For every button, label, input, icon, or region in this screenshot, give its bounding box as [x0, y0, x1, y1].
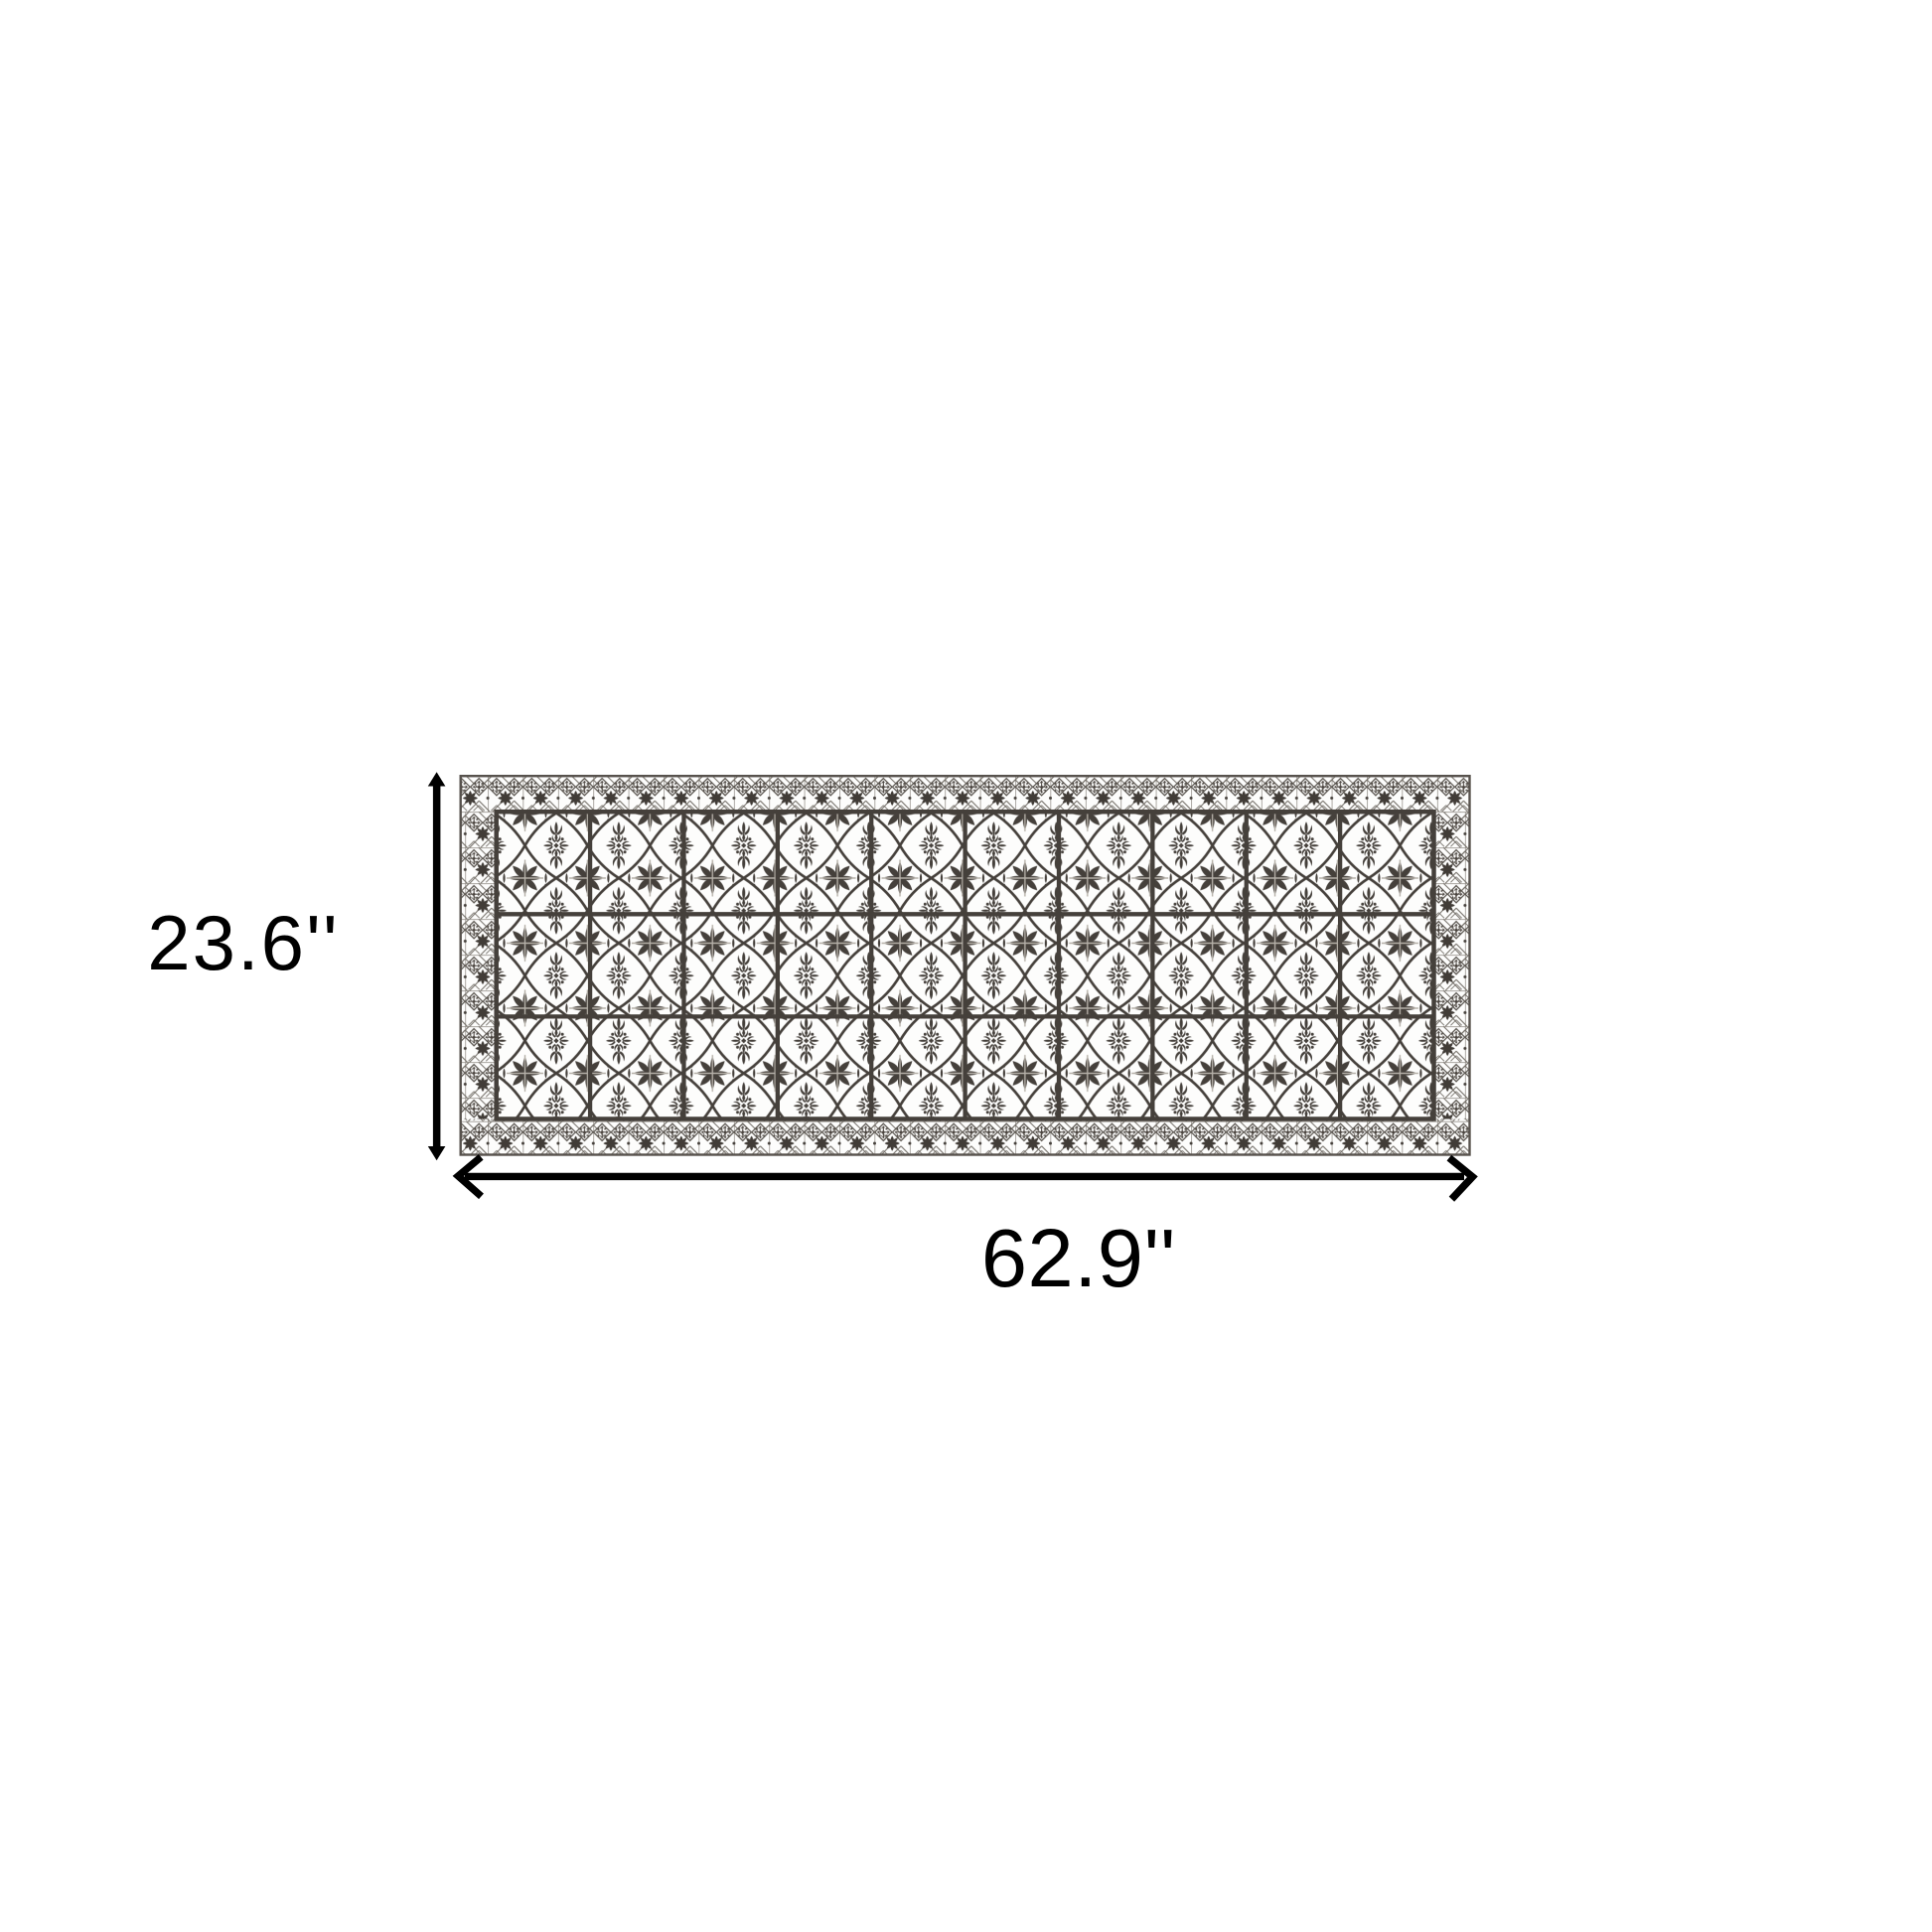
svg-text:62.9'': 62.9'' — [981, 1212, 1176, 1304]
svg-text:23.6'': 23.6'' — [147, 899, 340, 986]
